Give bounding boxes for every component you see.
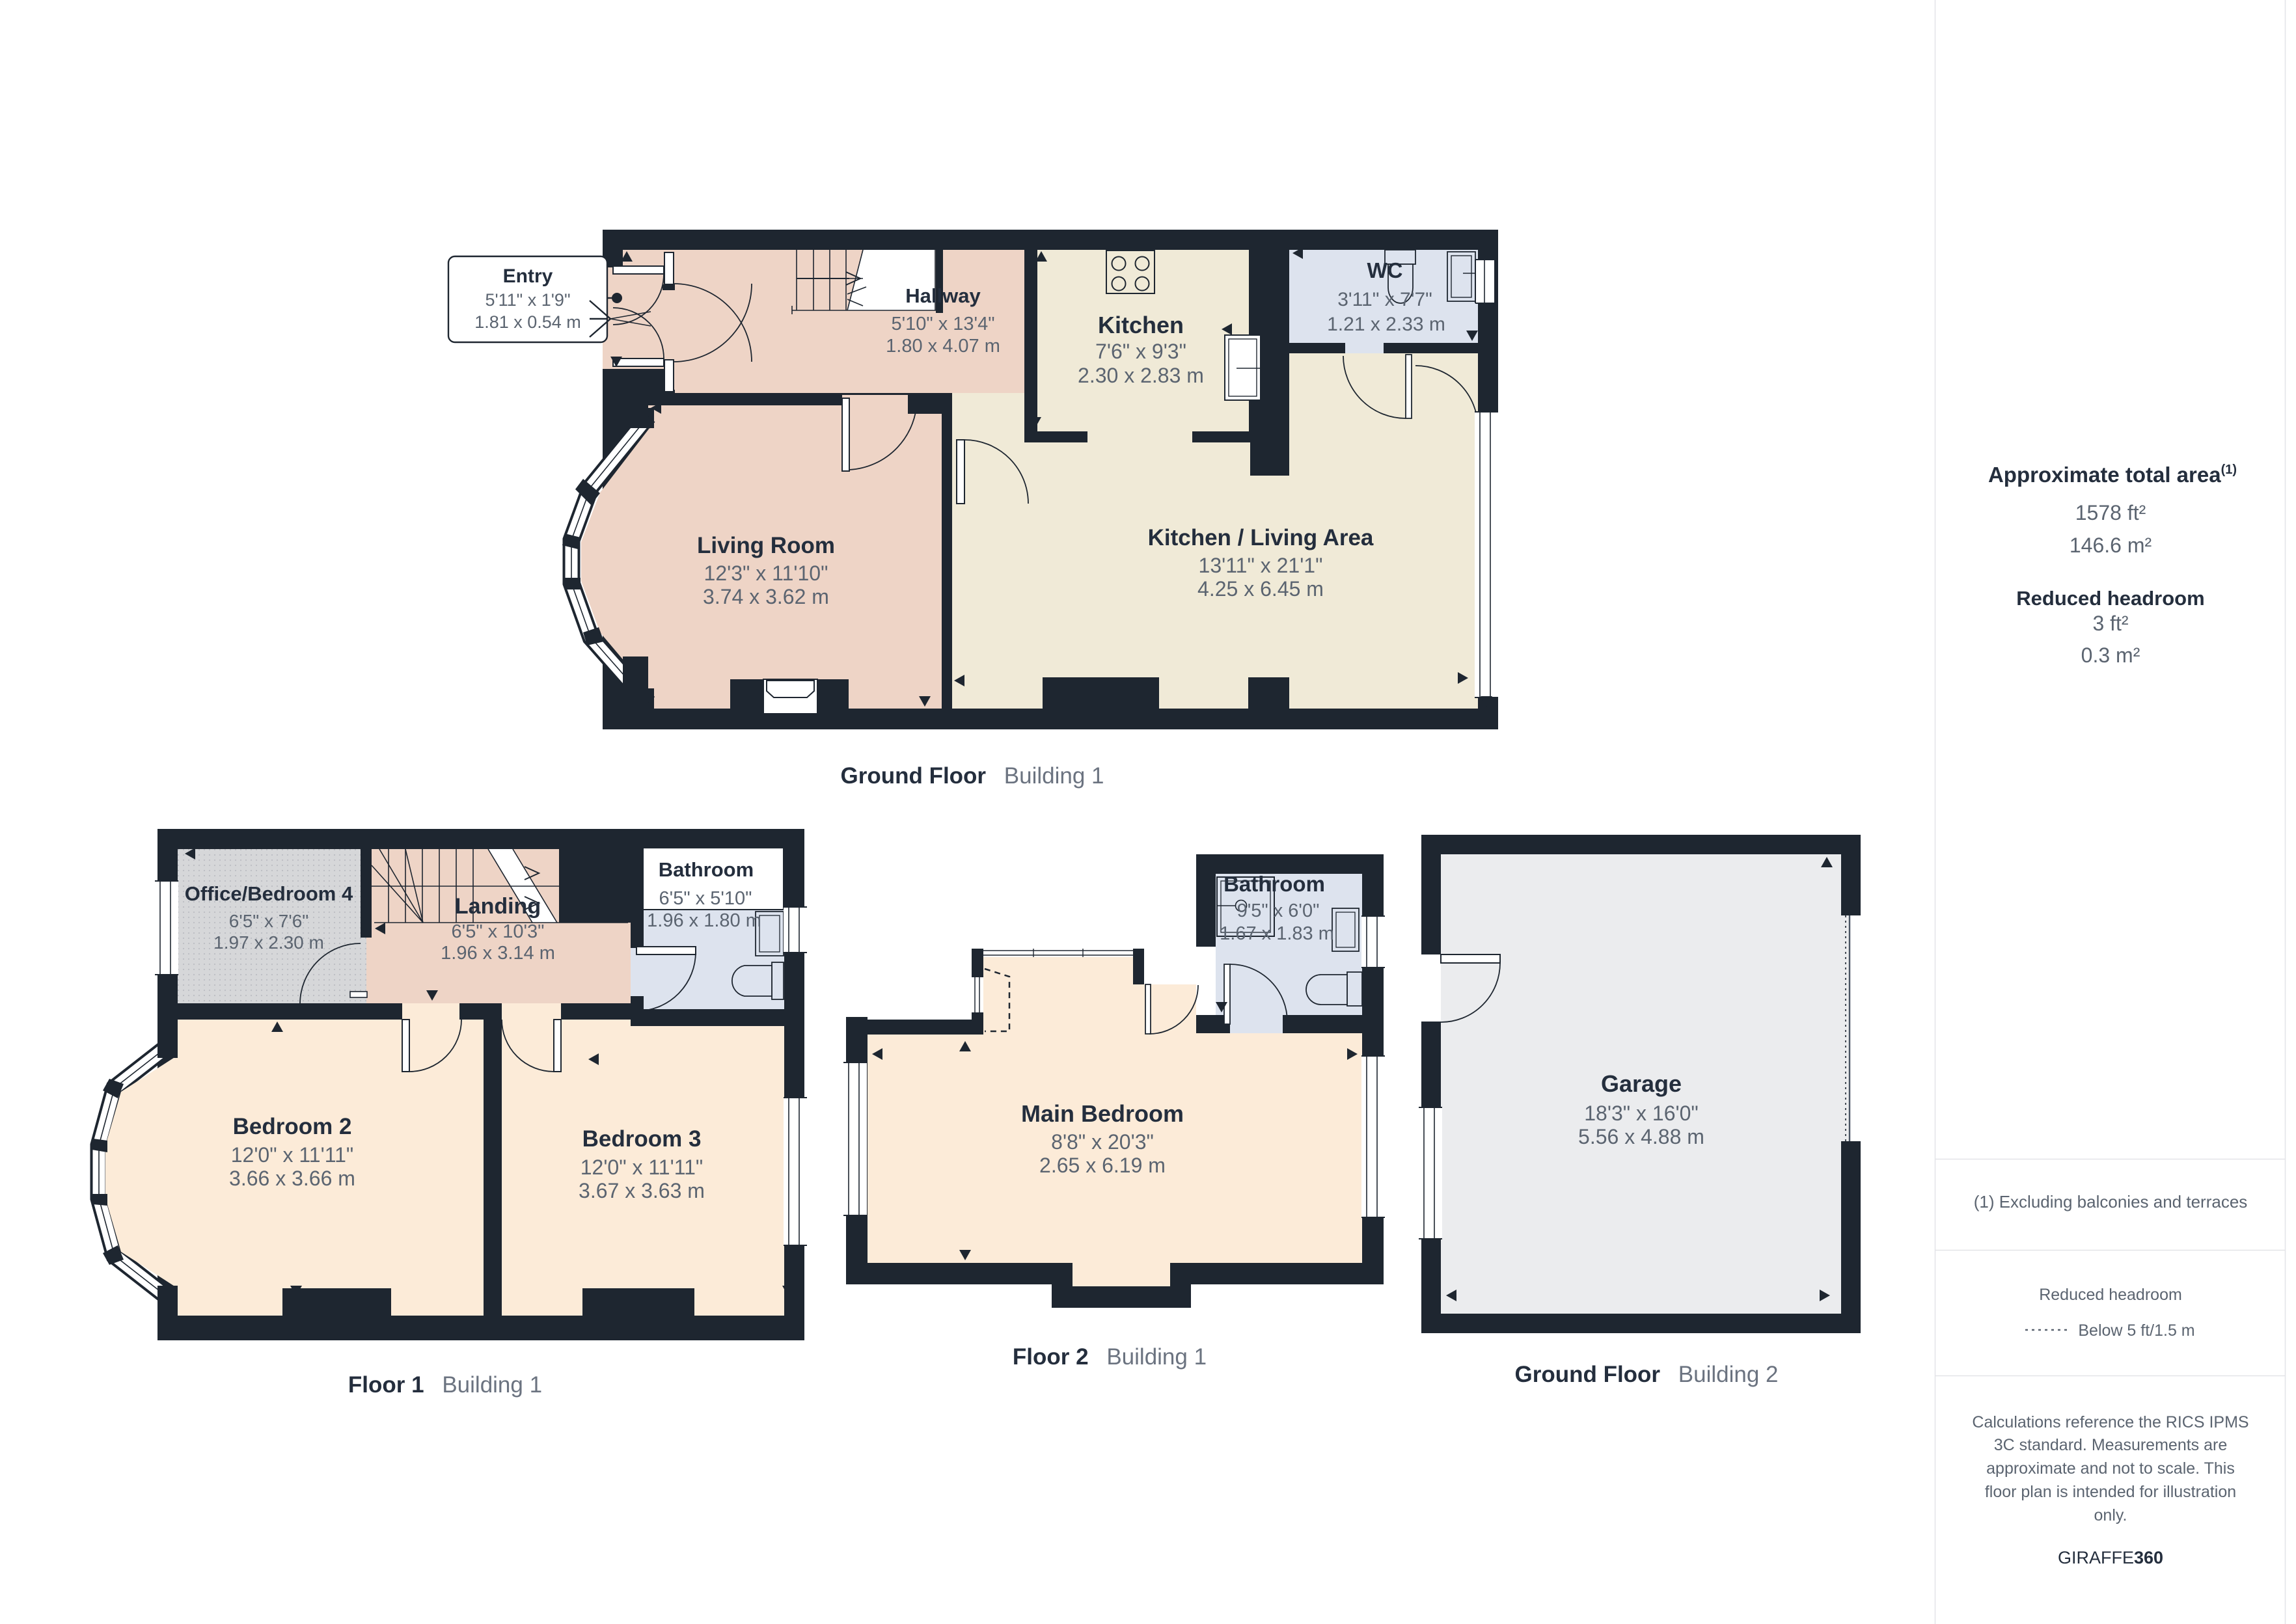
svg-text:1578 ft²: 1578 ft² [2075,501,2146,524]
svg-text:1.97 x 2.30 m: 1.97 x 2.30 m [213,932,324,953]
svg-text:Floor 2 Building 1: Floor 2 Building 1 [1013,1344,1207,1370]
svg-text:8'8" x 20'3": 8'8" x 20'3" [1051,1130,1154,1154]
svg-text:Hallway: Hallway [905,284,981,307]
svg-text:7'6" x 9'3": 7'6" x 9'3" [1095,340,1186,363]
svg-text:approximate and not to scale.: approximate and not to scale. This [1986,1459,2235,1478]
svg-text:Garage: Garage [1601,1070,1682,1097]
svg-text:6'5" x 10'3": 6'5" x 10'3" [452,921,545,942]
svg-text:Kitchen: Kitchen [1098,312,1184,338]
svg-text:GIRAFFE360: GIRAFFE360 [2058,1548,2163,1567]
svg-text:Office/Bedroom 4: Office/Bedroom 4 [185,882,353,905]
svg-text:5'11" x 1'9": 5'11" x 1'9" [485,290,570,310]
svg-text:13'11" x 21'1": 13'11" x 21'1" [1199,554,1323,577]
svg-text:1.67 x 1.83 m: 1.67 x 1.83 m [1220,923,1334,944]
svg-text:Ground Floor Building 1: Ground Floor Building 1 [840,763,1104,789]
svg-text:1.96 x 3.14 m: 1.96 x 3.14 m [441,943,555,964]
svg-text:1.80 x 4.07 m: 1.80 x 4.07 m [886,336,1000,357]
svg-text:Kitchen / Living Area: Kitchen / Living Area [1148,525,1374,550]
svg-text:Reduced headroom: Reduced headroom [2016,587,2204,610]
svg-text:Bedroom 3: Bedroom 3 [582,1126,702,1152]
svg-text:Main Bedroom: Main Bedroom [1021,1100,1184,1127]
svg-text:3.66 x 3.66 m: 3.66 x 3.66 m [229,1167,355,1190]
svg-text:Bathroom: Bathroom [1223,872,1325,896]
svg-text:Living Room: Living Room [697,533,835,558]
svg-text:4.25 x 6.45 m: 4.25 x 6.45 m [1197,577,1324,601]
svg-text:Reduced headroom: Reduced headroom [2039,1286,2182,1304]
svg-text:Calculations reference the RIC: Calculations reference the RICS IPMS [1972,1413,2248,1431]
svg-text:12'0" x 11'11": 12'0" x 11'11" [231,1143,354,1167]
svg-text:0.3 m²: 0.3 m² [2081,643,2140,667]
svg-text:Landing: Landing [455,894,541,919]
svg-text:Ground Floor Building 2: Ground Floor Building 2 [1514,1362,1778,1387]
svg-text:3C standard. Measurements are: 3C standard. Measurements are [1994,1436,2228,1454]
svg-text:2.65 x 6.19 m: 2.65 x 6.19 m [1039,1154,1166,1177]
svg-text:Approximate total area(1): Approximate total area(1) [1988,463,2237,487]
svg-text:Bathroom: Bathroom [659,858,754,881]
svg-text:18'3" x 16'0": 18'3" x 16'0" [1584,1102,1699,1125]
svg-text:only.: only. [2094,1506,2127,1524]
svg-text:5.56 x 4.88 m: 5.56 x 4.88 m [1578,1125,1704,1148]
svg-text:12'3" x 11'10": 12'3" x 11'10" [704,562,828,585]
svg-text:1.21 x 2.33 m: 1.21 x 2.33 m [1327,314,1445,335]
svg-text:(1) Excluding balconies and te: (1) Excluding balconies and terraces [1974,1192,2248,1211]
svg-text:WC: WC [1367,258,1403,282]
svg-text:3 ft²: 3 ft² [2092,612,2128,635]
svg-text:3.74 x 3.62 m: 3.74 x 3.62 m [703,585,829,608]
svg-text:Below 5 ft/1.5 m: Below 5 ft/1.5 m [2078,1321,2194,1340]
svg-text:12'0" x 11'11": 12'0" x 11'11" [581,1156,704,1179]
svg-text:146.6 m²: 146.6 m² [2070,534,2152,557]
svg-text:6'5" x 7'6": 6'5" x 7'6" [229,911,308,931]
svg-text:5'10" x 13'4": 5'10" x 13'4" [891,314,994,334]
svg-text:6'5" x 5'10": 6'5" x 5'10" [659,888,752,909]
svg-text:2.30 x 2.83 m: 2.30 x 2.83 m [1078,364,1204,387]
svg-text:3.67 x 3.63 m: 3.67 x 3.63 m [579,1179,705,1202]
svg-text:3'11" x 7'7": 3'11" x 7'7" [1337,289,1432,310]
svg-text:9'5" x 6'0": 9'5" x 6'0" [1237,900,1320,921]
svg-text:Bedroom 2: Bedroom 2 [233,1114,352,1139]
svg-text:floor plan is intended for ill: floor plan is intended for illustration [1985,1483,2236,1501]
svg-text:1.81 x 0.54 m: 1.81 x 0.54 m [474,312,581,332]
svg-text:Floor 1 Building 1: Floor 1 Building 1 [348,1372,542,1398]
svg-text:1.96 x 1.80 m: 1.96 x 1.80 m [647,910,761,931]
svg-text:Entry: Entry [503,265,553,287]
